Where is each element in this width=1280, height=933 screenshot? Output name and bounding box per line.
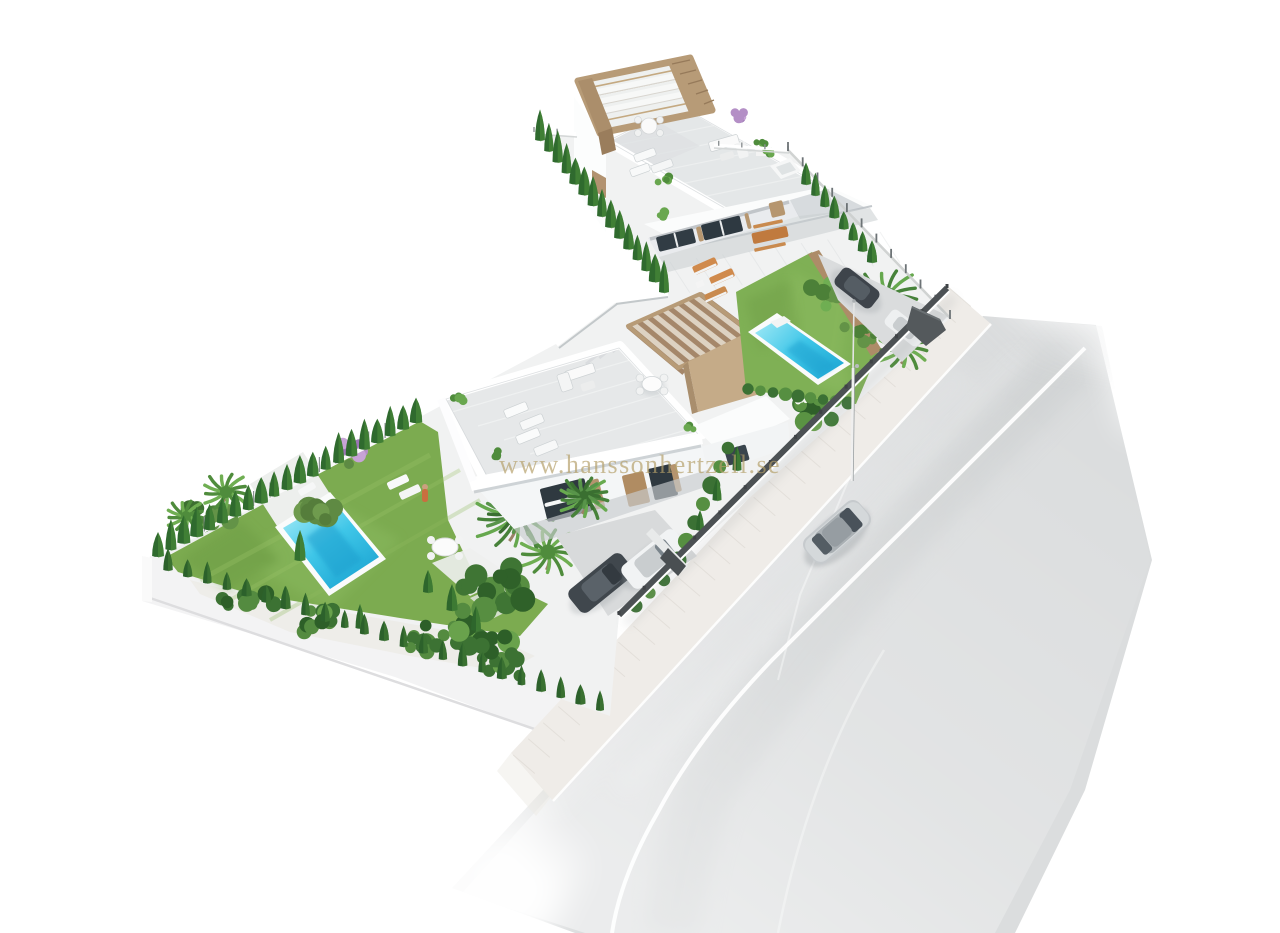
- svg-text:www.hanssonhertzell.se: www.hanssonhertzell.se: [499, 450, 781, 479]
